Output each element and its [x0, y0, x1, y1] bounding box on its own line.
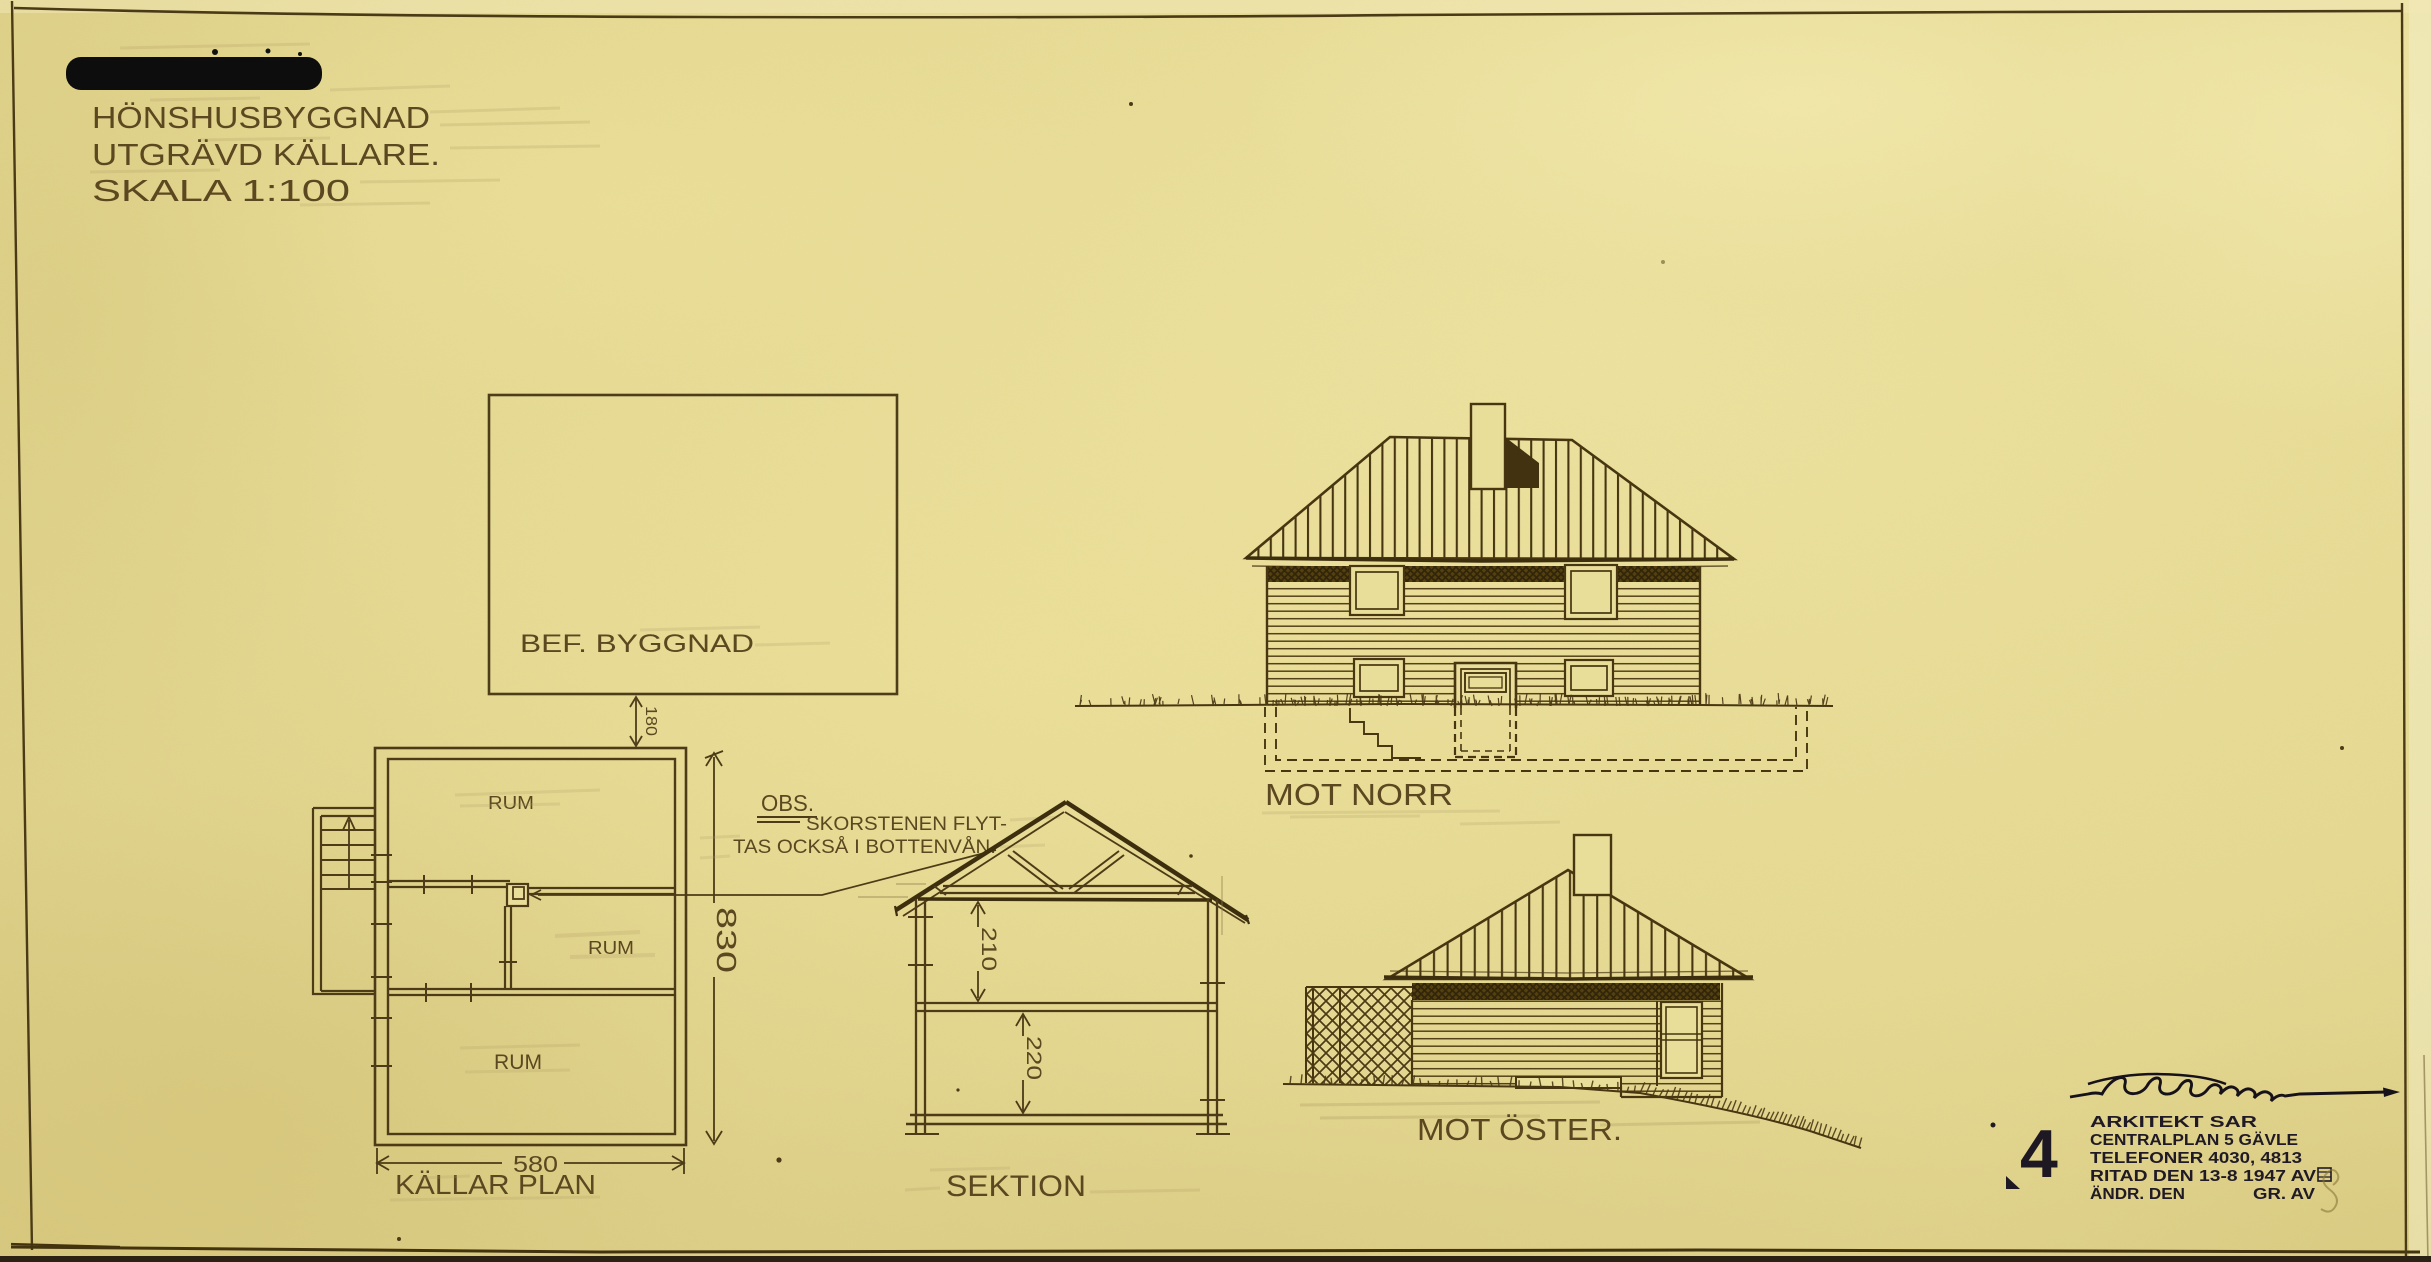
svg-text:KÄLLAR PLAN: KÄLLAR PLAN — [395, 1169, 596, 1200]
svg-text:210: 210 — [977, 927, 1000, 971]
svg-text:SEKTION: SEKTION — [946, 1170, 1086, 1203]
svg-text:HÖNSHUSBYGGNAD: HÖNSHUSBYGGNAD — [92, 100, 430, 135]
svg-text:RUM: RUM — [488, 793, 534, 813]
svg-text:830: 830 — [711, 907, 742, 973]
svg-text:RITAD DEN 13-8 1947 AV: RITAD DEN 13-8 1947 AV — [2090, 1168, 2316, 1185]
svg-text:MOT ÖSTER.: MOT ÖSTER. — [1417, 1112, 1622, 1147]
svg-text:TELEFONER 4030, 4813: TELEFONER 4030, 4813 — [2090, 1150, 2302, 1167]
svg-text:180: 180 — [642, 706, 659, 736]
svg-text:CENTRALPLAN 5 GÄVLE: CENTRALPLAN 5 GÄVLE — [2090, 1131, 2298, 1149]
svg-text:UTGRÄVD KÄLLARE.: UTGRÄVD KÄLLARE. — [92, 137, 440, 172]
svg-text:220: 220 — [1022, 1036, 1045, 1080]
svg-text:SKORSTENEN FLYT-: SKORSTENEN FLYT- — [806, 814, 1007, 835]
svg-text:ÄNDR. DEN: ÄNDR. DEN — [2090, 1185, 2185, 1203]
svg-text:ARKITEKT SAR: ARKITEKT SAR — [2090, 1114, 2258, 1131]
svg-text:MOT NORR: MOT NORR — [1265, 777, 1453, 812]
svg-text:TAS OCKSÅ I BOTTENVÅN.: TAS OCKSÅ I BOTTENVÅN. — [733, 837, 996, 858]
svg-text:SKALA 1:100: SKALA 1:100 — [92, 173, 350, 208]
svg-text:GR. AV: GR. AV — [2253, 1186, 2315, 1203]
svg-text:OBS.: OBS. — [761, 790, 814, 816]
svg-text:4: 4 — [2020, 1116, 2058, 1192]
svg-text:BEF. BYGGNAD: BEF. BYGGNAD — [520, 630, 754, 658]
